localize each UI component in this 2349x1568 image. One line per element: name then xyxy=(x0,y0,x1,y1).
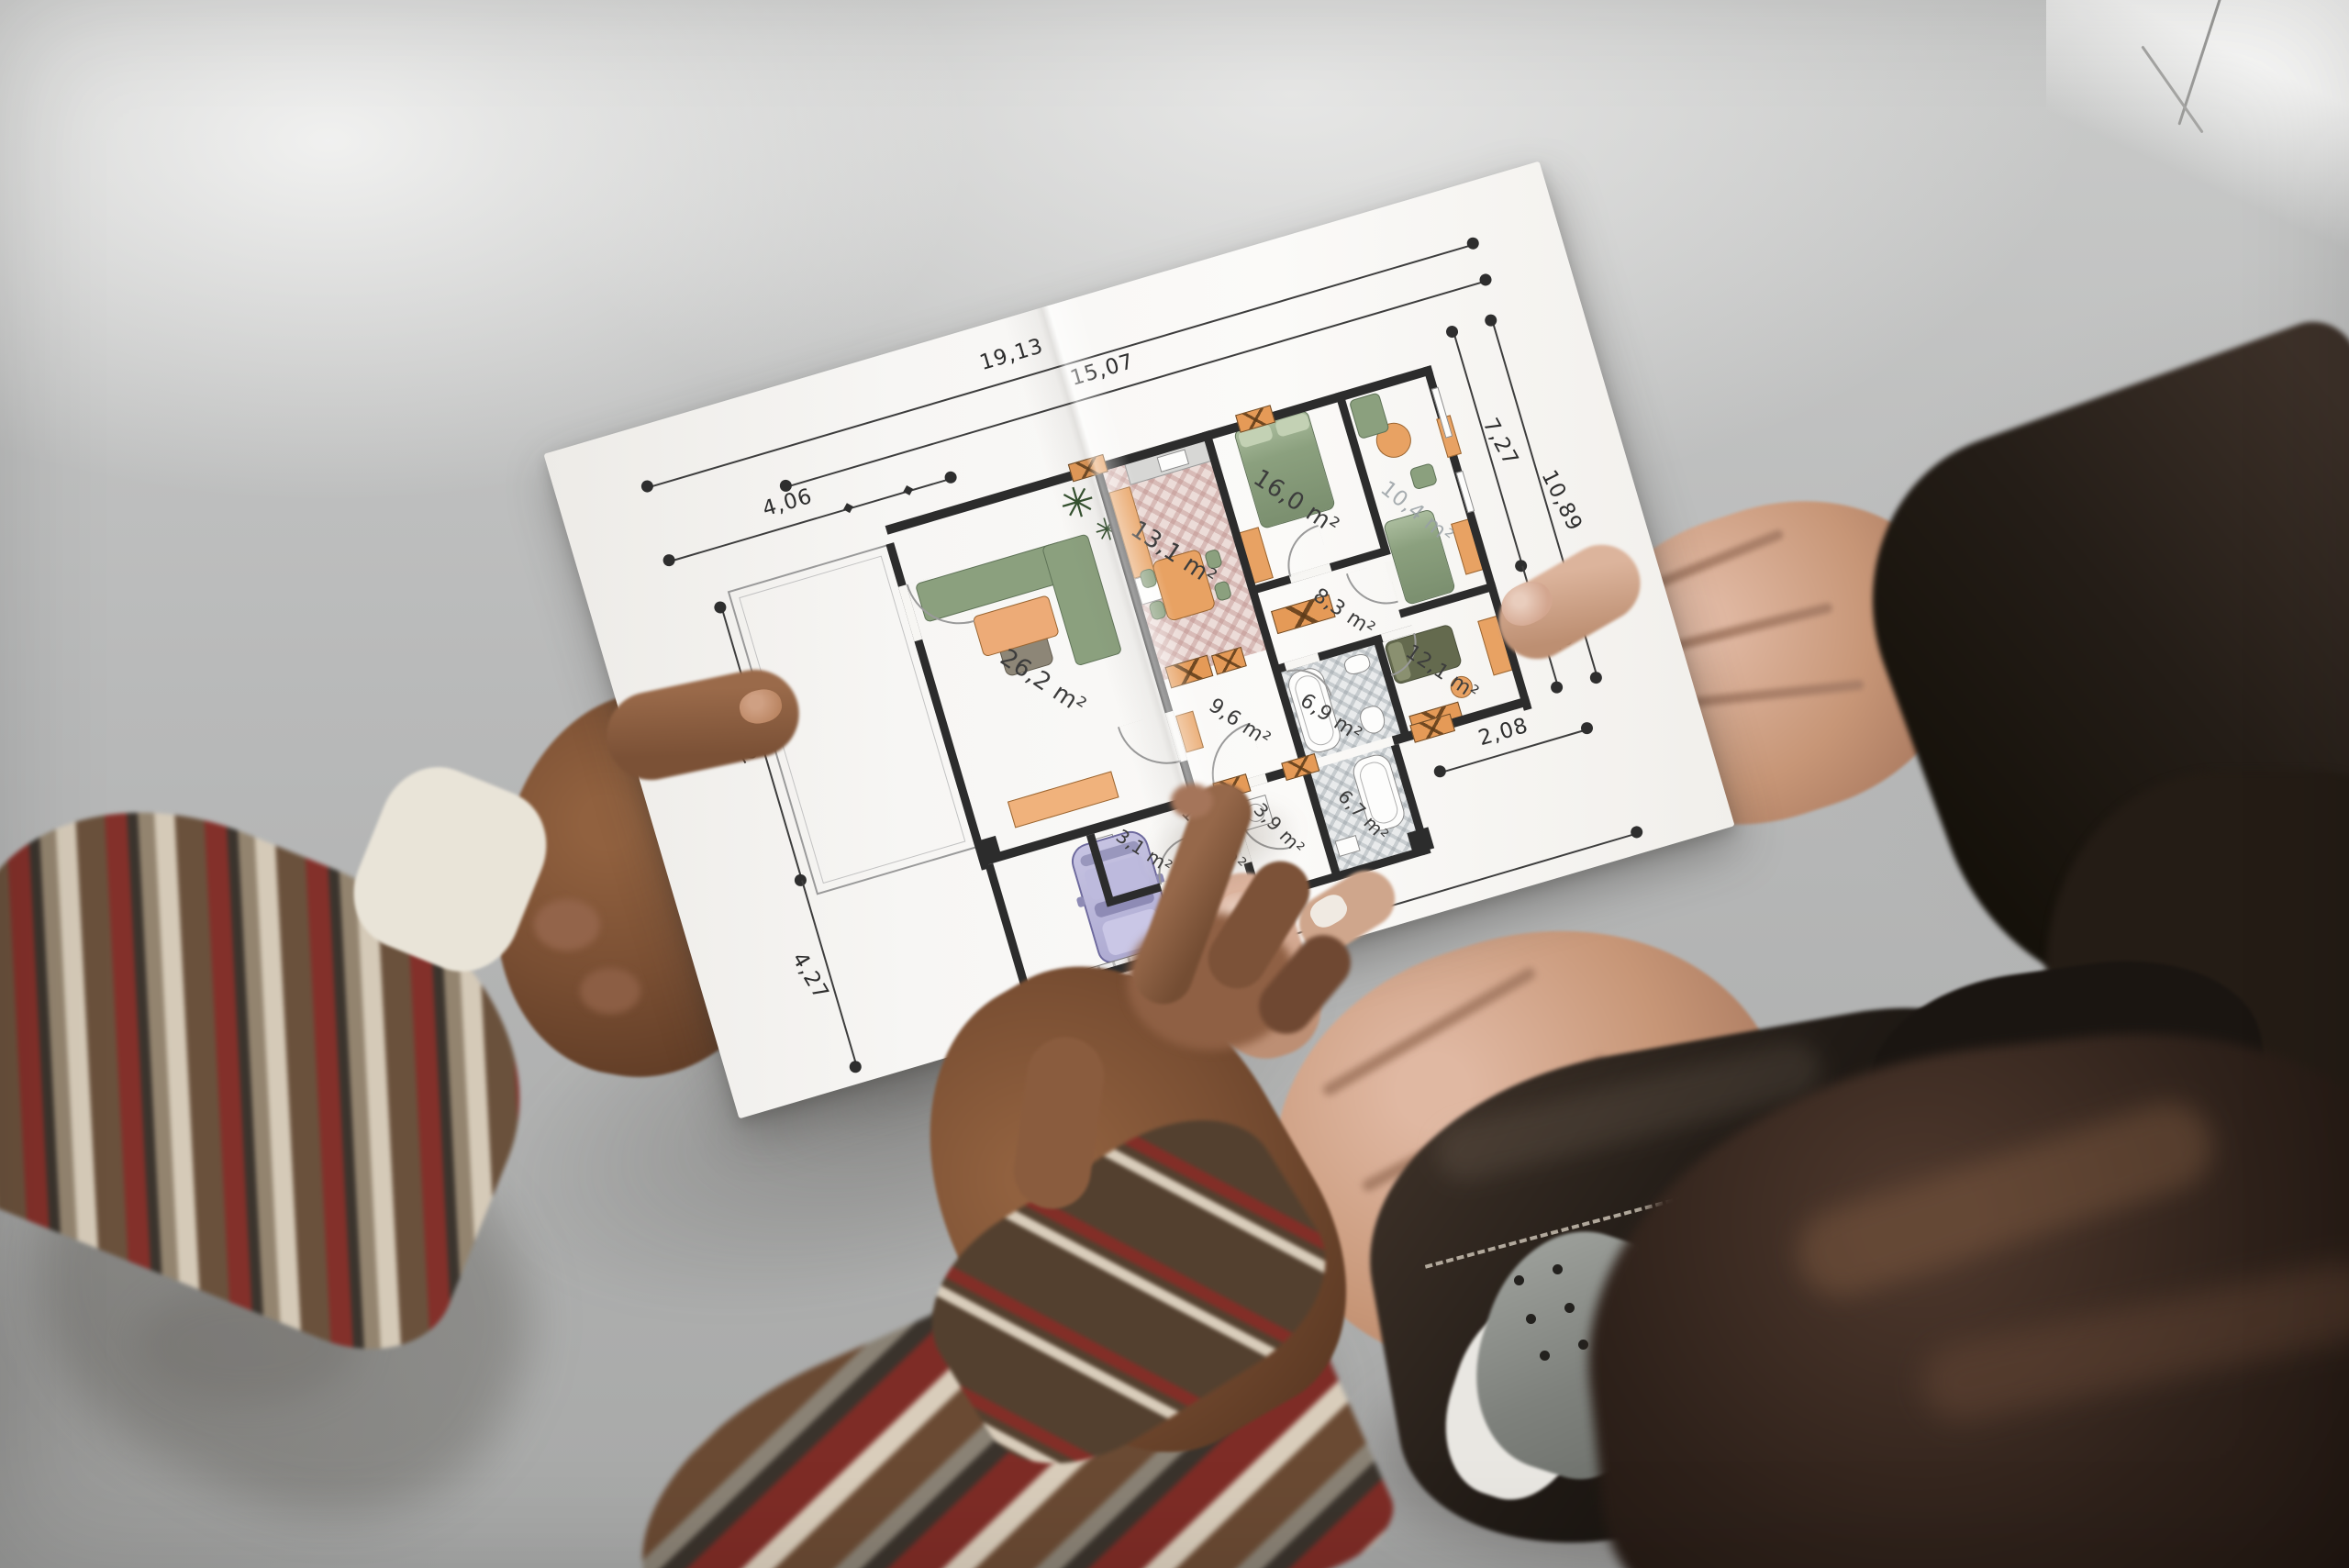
dimension-dot xyxy=(1588,671,1603,685)
sneaker-lace-dot xyxy=(1564,1303,1575,1313)
dimension-label: 15,07 xyxy=(1068,350,1137,391)
dimension-dot xyxy=(713,600,728,615)
dimension-dot xyxy=(943,470,958,484)
sideboard xyxy=(1008,771,1119,828)
dimension-dot xyxy=(1444,324,1459,339)
dimension-dot xyxy=(640,479,654,494)
left-hand-knuckle xyxy=(580,968,640,1014)
dimension-label: 19,13 xyxy=(977,334,1046,375)
dimension-dot xyxy=(1630,825,1644,840)
dimension-dot xyxy=(1465,236,1480,250)
dimension-dot xyxy=(1484,313,1498,328)
sneaker-lace-dot xyxy=(1553,1264,1563,1274)
sofa xyxy=(1041,533,1122,666)
dimension-dot xyxy=(1550,680,1564,695)
dimension-dot xyxy=(662,553,676,568)
dimension-label: 4,06 xyxy=(760,484,815,522)
sneaker-lace-dot xyxy=(1540,1351,1550,1361)
dimension-tick xyxy=(903,485,913,495)
pointing-fingertip xyxy=(1171,784,1213,818)
sneaker-lace-dot xyxy=(1526,1314,1536,1324)
left-hand-knuckle xyxy=(534,899,600,951)
sneaker-lace-dot xyxy=(1578,1340,1588,1350)
dimension-dot xyxy=(1432,764,1447,779)
floor-highlight xyxy=(2046,0,2349,294)
dimension-dot xyxy=(1579,721,1594,736)
dimension-dot xyxy=(848,1060,863,1074)
sneaker-lace-dot xyxy=(1514,1275,1524,1285)
dimension-label: 4,27 xyxy=(787,949,833,1005)
chair xyxy=(1408,462,1438,490)
photo-scene: ✳ ✳ xyxy=(0,0,2349,1568)
dimension-dot xyxy=(1478,272,1493,287)
dimension-label: 2,08 xyxy=(1475,714,1531,751)
dimension-tick xyxy=(843,503,853,513)
